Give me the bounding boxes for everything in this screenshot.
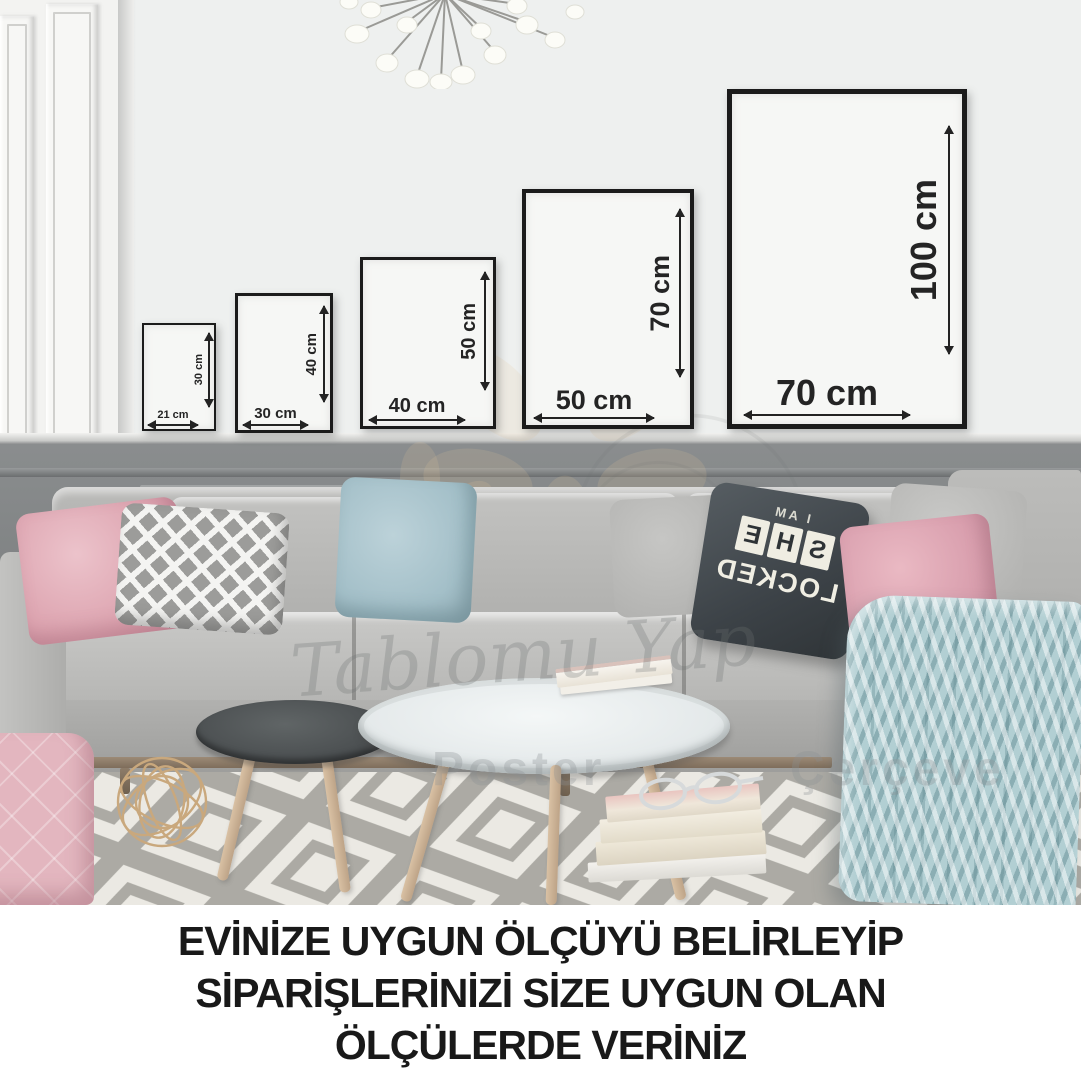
width-dimension: 30 cm xyxy=(243,406,308,426)
height-label: 40 cm xyxy=(303,333,320,376)
frame-70x100: 100 cm 70 cm xyxy=(727,89,967,429)
width-label: 40 cm xyxy=(389,396,446,416)
width-dimension: 40 cm xyxy=(369,396,465,421)
height-label: 70 cm xyxy=(645,255,676,332)
caption-line-1: EVİNİZE UYGUN ÖLÇÜYÜ BELİRLEYİP xyxy=(178,916,903,966)
frame-50x70: 70 cm 50 cm xyxy=(522,189,694,429)
height-dimension: 70 cm xyxy=(645,209,681,377)
living-room-photo: 30 cm 21 cm 40 cm 30 cm 50 cm xyxy=(0,0,1081,905)
height-dimension: 40 cm xyxy=(303,306,325,402)
chandelier xyxy=(295,0,595,89)
height-label: 50 cm xyxy=(458,303,481,360)
frame-30x40: 40 cm 30 cm xyxy=(235,293,333,433)
caption-line-2: SİPARİŞLERİNİZİ SİZE UYGUN OLAN xyxy=(195,968,885,1018)
height-dimension: 50 cm xyxy=(458,272,486,390)
width-dimension: 21 cm xyxy=(148,410,198,426)
width-label: 70 cm xyxy=(776,375,878,411)
blue-pillow xyxy=(334,477,477,624)
height-arrow xyxy=(948,126,950,354)
width-arrow xyxy=(744,414,910,416)
height-dimension: 30 cm xyxy=(193,333,210,407)
chevron-pillow xyxy=(114,502,290,635)
height-label: 30 cm xyxy=(193,354,205,385)
width-dimension: 70 cm xyxy=(744,375,910,416)
pink-pouf xyxy=(0,733,94,905)
height-label: 100 cm xyxy=(903,179,945,301)
height-arrow xyxy=(208,333,210,407)
width-dimension: 50 cm xyxy=(534,387,654,419)
height-dimension: 100 cm xyxy=(903,126,950,354)
width-arrow xyxy=(243,424,308,426)
width-label: 30 cm xyxy=(254,406,297,421)
frame-40x50: 50 cm 40 cm xyxy=(360,257,496,429)
product-image: 30 cm 21 cm 40 cm 30 cm 50 cm xyxy=(0,0,1081,1081)
height-arrow xyxy=(484,272,486,390)
width-label: 21 cm xyxy=(157,410,188,421)
width-arrow xyxy=(369,419,465,421)
watermark-cerceve: Çerçeve xyxy=(790,742,1005,797)
width-label: 50 cm xyxy=(556,387,633,414)
width-arrow xyxy=(534,417,654,419)
frame-21x30: 30 cm 21 cm xyxy=(142,323,216,431)
caption-line-3: ÖLÇÜLERDE VERİNİZ xyxy=(335,1020,746,1070)
wire-sphere-decor xyxy=(112,752,212,852)
height-arrow xyxy=(679,209,681,377)
width-arrow xyxy=(148,424,198,426)
watermark-poster: Poster xyxy=(432,742,605,797)
caption-band: EVİNİZE UYGUN ÖLÇÜYÜ BELİRLEYİP SİPARİŞL… xyxy=(0,905,1081,1081)
eyeglasses xyxy=(618,768,768,818)
height-arrow xyxy=(323,306,325,402)
